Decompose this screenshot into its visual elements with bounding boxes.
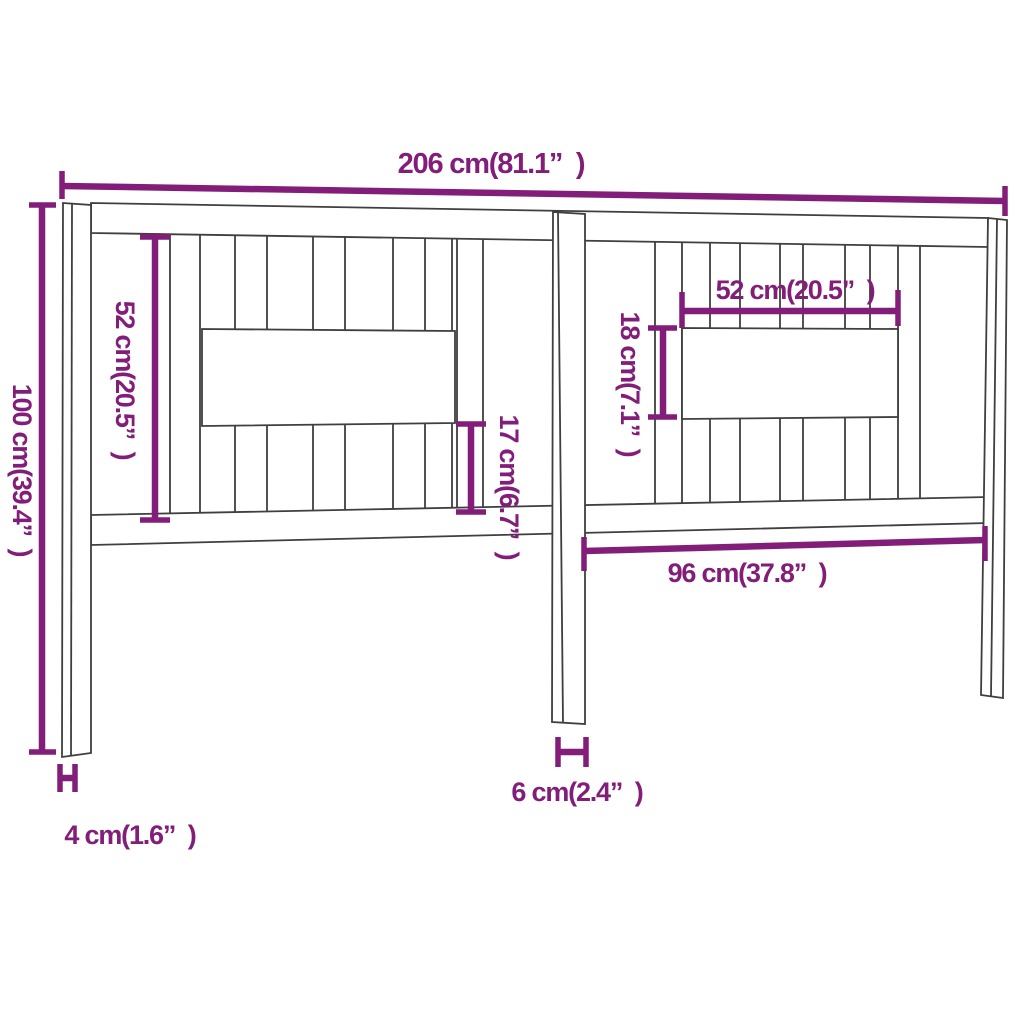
dim-total-width-label: 206 cm(81.1” ) [398, 148, 585, 180]
dim-right-section-width: 96 cm(37.8” ) [584, 526, 985, 588]
dim-left-panel-height: 52 cm(20.5” ) [110, 237, 170, 520]
dim-total-height: 100 cm(39.4” ) [7, 205, 56, 752]
dim-right-board-height-label: 18 cm(7.1” ) [615, 312, 645, 457]
center-post [552, 212, 585, 724]
dim-center-post-width: 6 cm(2.4” ) [511, 737, 642, 807]
center-post-body [552, 212, 585, 724]
bottom-rail [91, 497, 988, 545]
dim-right-section-width-label: 96 cm(37.8” ) [668, 558, 827, 588]
right-post [981, 218, 1007, 698]
left-center-board [202, 329, 455, 426]
right-center-board [682, 328, 898, 419]
left-post-edge-line [71, 204, 72, 756]
diagram-page: 206 cm(81.1” ) 100 cm(39.4” ) 52 cm(20.5… [0, 0, 1024, 1024]
dim-right-board-width: 52 cm(20.5” ) [682, 275, 898, 328]
dim-total-width-line [62, 186, 1005, 201]
dim-side-post-depth-label: 4 cm(1.6” ) [64, 820, 195, 850]
dim-right-section-width-line [584, 540, 985, 551]
dim-right-board-width-label: 52 cm(20.5” ) [716, 275, 875, 305]
left-post [62, 203, 91, 757]
dim-total-height-label: 100 cm(39.4” ) [7, 384, 37, 557]
left-post-body [62, 203, 91, 757]
headboard-dimension-diagram: 206 cm(81.1” ) 100 cm(39.4” ) 52 cm(20.5… [0, 0, 1024, 1024]
dim-right-board-height: 18 cm(7.1” ) [615, 312, 677, 457]
top-rail [91, 203, 988, 247]
dim-lower-gap: 17 cm(6.7” ) [456, 415, 524, 560]
dim-side-post-depth: 4 cm(1.6” ) [60, 764, 196, 850]
dim-center-post-width-label: 6 cm(2.4” ) [511, 777, 642, 807]
dim-lower-gap-label: 17 cm(6.7” ) [494, 415, 524, 560]
dim-left-panel-height-label: 52 cm(20.5” ) [110, 301, 140, 460]
